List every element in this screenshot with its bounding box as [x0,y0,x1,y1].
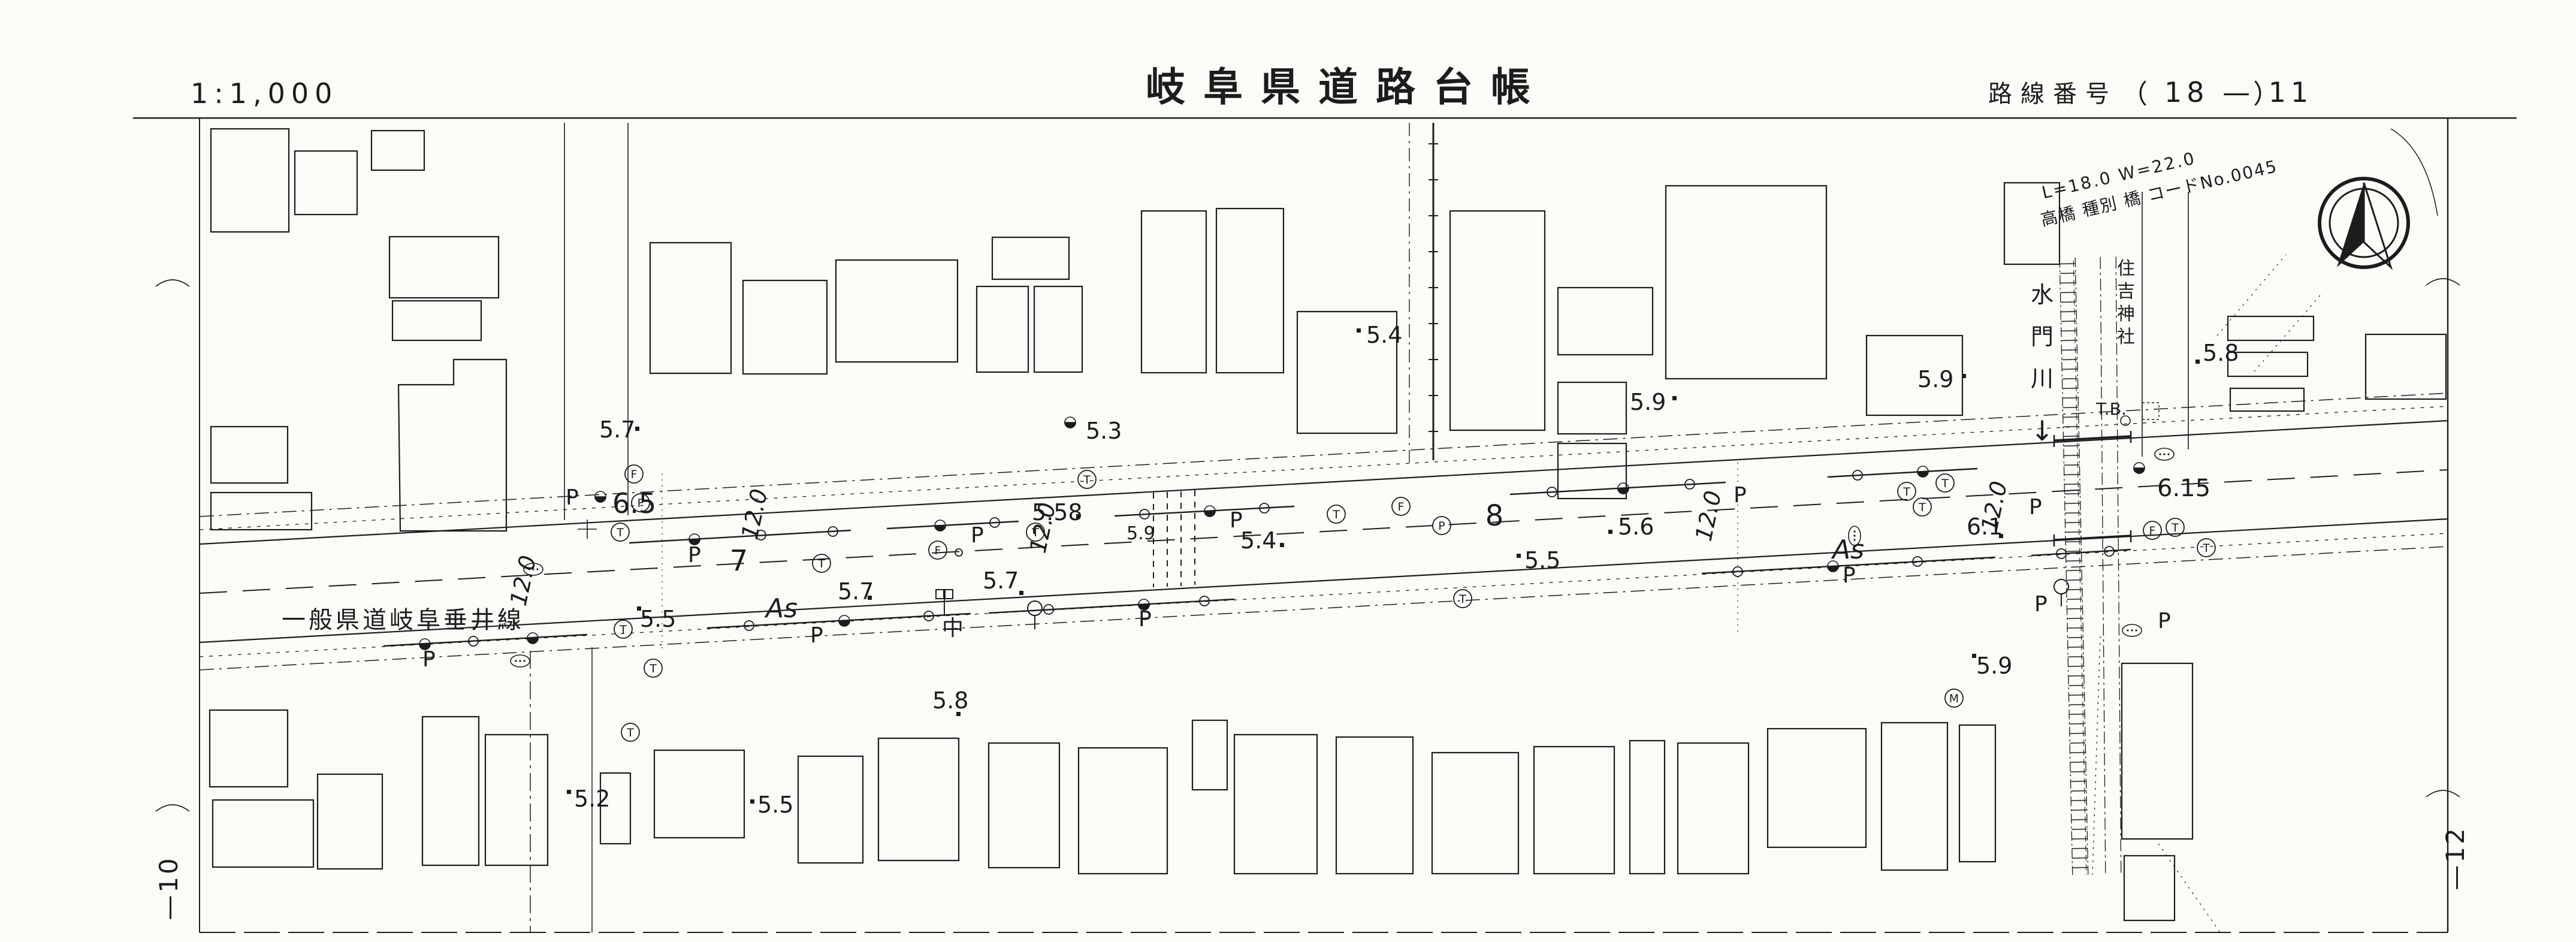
utility-pole-icons [469,470,2114,646]
building [211,129,289,232]
upper-sidewalk-line [200,406,2448,530]
building [389,237,499,298]
shrine-name-char: 社 [2117,327,2135,348]
p-mark: P [1843,563,1856,588]
svg-text:T: T [1458,593,1466,606]
road-name-label: 一般県道岐阜垂井線 [282,606,524,634]
river-name-char: 川 [2031,366,2053,392]
shrine-name-char: 神 [2117,304,2135,325]
building [1450,211,1545,430]
building [1079,748,1167,874]
registration-arc [156,280,189,286]
elevation-label: 5.8 [932,687,968,714]
building [989,743,1059,868]
building [878,738,959,861]
svg-text:T: T [1332,508,1340,521]
road-ledger-sheet: 1:1,000 岐阜県道路台帳 路線番号 （ 18 — 11 ） —10 —12… [0,0,2576,942]
svg-text:T: T [1918,501,1926,514]
building [213,800,313,867]
elevation-label: 5.5 [1524,547,1560,573]
sheet-number-left: —10 [154,856,183,920]
circled-m-icon: M [1945,689,1963,707]
building [398,360,506,531]
building [1959,725,1995,862]
svg-text:T: T [649,662,657,675]
elevation-label: 5.4 [1366,322,1402,348]
p-mark: P [2034,592,2047,617]
building [295,151,357,215]
elevation-label: 6.15 [2157,475,2210,502]
building [372,131,424,170]
svg-text:M: M [1949,692,1959,705]
route-paren-open: （ [2121,79,2148,110]
sheet-frame: —10 —12 [154,118,2470,932]
building [650,243,731,373]
svg-text:T: T [1083,473,1091,487]
north-compass-icon [2320,179,2408,267]
building [1216,209,1284,373]
elevation-label: 6.1 [1967,514,2003,540]
building [2366,334,2446,399]
building [1534,747,1614,874]
svg-text:12.0: 12.0 [736,487,773,542]
tb-label: T.B. [2095,399,2127,419]
p-mark: P [688,543,701,567]
river-name-char: 水 [2031,282,2053,308]
p-mark: P [2158,609,2171,633]
streetlight-icons [1028,579,2068,629]
building [2228,316,2314,340]
p-mark: P [1734,483,1747,508]
elevation-label: 5.6 [1618,514,1654,540]
elevation-label: 5.9 [1976,653,2012,679]
surface-label-as: As [1831,535,1864,565]
building [1192,720,1227,790]
svg-text:T: T [1941,477,1949,490]
riverside-path [2092,636,2100,875]
route-number-block: 路線番号 （ 18 — 11 ） [1988,76,2313,110]
elevation-label: 5.58 [1032,499,1083,526]
building [1336,737,1413,874]
p-mark: P [971,523,984,548]
registration-arc [2426,790,2460,797]
building [318,774,382,869]
shrine-lot-diagonal [2254,292,2323,372]
building [836,260,958,362]
building [1768,729,1866,847]
building [977,286,1028,372]
elevation-label: 5.5 [757,792,793,818]
svg-text:P: P [1438,520,1445,533]
building [210,710,288,787]
svg-text:T: T [616,526,624,539]
svg-text:F: F [631,468,638,481]
river-flow-arrow: ↓ [2031,415,2054,447]
elevation-label: 5.7 [838,578,874,605]
building [1432,753,1518,874]
building [392,301,481,340]
crosswalk [1153,490,1195,587]
page-title: 岐阜県道路台帳 [1146,64,1548,110]
station-number: 8 [1485,499,1504,533]
registration-arc [156,805,189,811]
registration-arc [2426,279,2460,285]
river-name-char: 門 [2031,324,2053,350]
elevation-label: 5.9 [1917,366,1953,393]
building [654,750,744,838]
svg-text:T: T [626,726,634,739]
svg-text:T: T [619,623,627,636]
building [1234,735,1317,874]
elevation-label: 5.9 [1630,389,1666,415]
svg-text:F: F [935,544,941,557]
station-number: 7 [730,544,748,578]
svg-text:T: T [2202,542,2210,555]
elevation-label: 5.8 [2203,340,2239,366]
center-mark-label: 中 [942,616,964,641]
surface-label-as: As [764,593,798,624]
svg-text:T: T [2171,521,2179,535]
building [1666,186,1826,379]
svg-text:F: F [1398,500,1405,514]
route-number-label: 路線番号 [1988,80,2118,108]
lot-diagonal [2158,844,2220,932]
shrine-name-char: 吉 [2117,281,2135,302]
building [2122,663,2193,839]
elevation-label: 5.7 [983,567,1019,594]
bridge-note: L=18.0 W=22.0 高橋 種別 橋 コードNo.0045 [2033,131,2279,230]
route-paren-close: ） [2253,79,2279,110]
building [1034,286,1082,372]
building [1558,288,1653,355]
shrine-name-char: 住 [2117,258,2135,279]
building [743,280,827,374]
building [422,717,479,865]
p-mark: P [422,647,436,672]
elevation-label: 5.3 [1086,418,1122,444]
circled-p-icon: P [1433,517,1451,535]
elevation-label: 5.7 [599,416,635,443]
p-mark: P [566,485,579,510]
parking-marks: P P P P P P P P P P P P [422,483,2171,672]
building [211,427,288,483]
circled-t-icon: T T T T T T T T T T T T T T [611,470,2215,741]
upper-road-edge [200,421,2448,544]
building [1141,211,1206,373]
elevation-label: 5.9 [1127,523,1155,544]
building [1678,743,1748,874]
p-mark: P [810,623,823,648]
spot-elevation-dots [567,328,2200,804]
elevation-label: 5.2 [574,786,610,812]
svg-text:12.0: 12.0 [1690,488,1727,544]
map-scale: 1:1,000 [191,77,338,110]
svg-text:F: F [2149,524,2156,538]
route-number-value: 18 — 11 [2164,76,2313,108]
map-canvas: 1:1,000 岐阜県道路台帳 路線番号 （ 18 — 11 ） —10 —12… [0,0,2576,942]
elevation-label: 5.4 [1240,527,1276,554]
p-mark: P [1138,607,1152,632]
corner-curve [2391,129,2438,216]
building [2124,856,2175,920]
building [2230,388,2304,411]
building [485,735,548,865]
svg-text:T: T [817,557,825,570]
building [798,756,863,863]
svg-text:12.0: 12.0 [505,553,542,608]
river-suimon [2059,256,2129,875]
p-mark: P [2029,495,2042,520]
sheet-number-right: —12 [2441,826,2470,890]
elevation-label: 5.5 [640,606,676,632]
road-lines [200,393,2448,670]
svg-text:T: T [1902,485,1910,499]
building [1630,741,1665,874]
road-sign-icon [936,590,953,616]
building [992,237,1069,279]
building [1558,382,1626,434]
elevation-label: 6.5 [612,487,656,520]
header-band: 1:1,000 岐阜県道路台帳 路線番号 （ 18 — 11 ） [133,64,2517,118]
building [1882,723,1947,870]
